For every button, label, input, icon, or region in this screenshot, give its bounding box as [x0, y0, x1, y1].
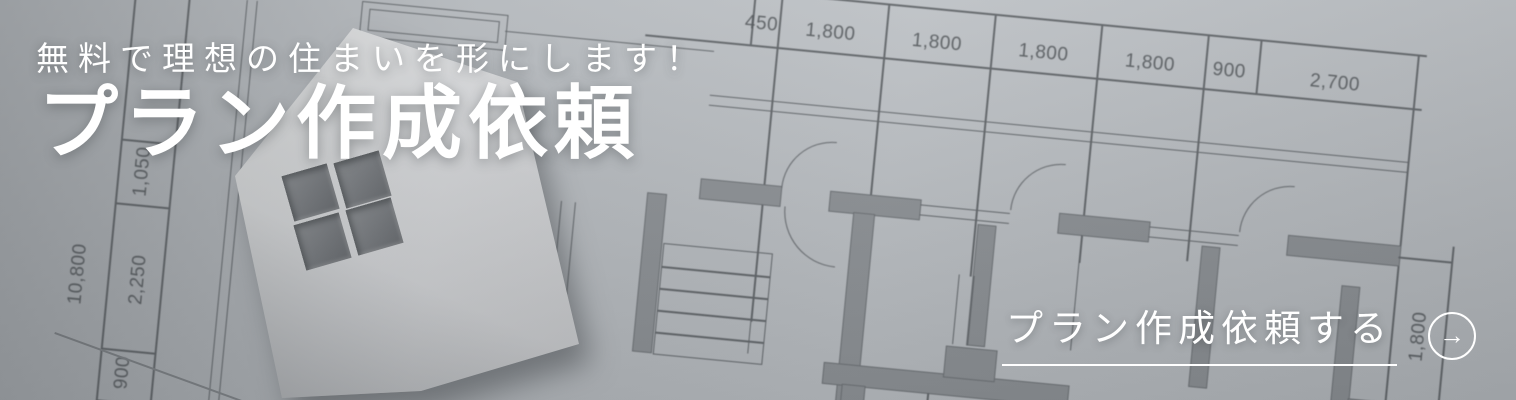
cta-label[interactable]: プラン作成依頼する — [1002, 298, 1397, 366]
right-arrow-icon: → — [1439, 322, 1465, 348]
door-arc — [781, 137, 837, 193]
door-arc — [1010, 159, 1066, 215]
stairs — [653, 243, 773, 365]
door-arc — [779, 206, 840, 267]
plan-request-cta-link[interactable]: プラン作成依頼する → — [1002, 298, 1492, 366]
door-arc — [1239, 181, 1295, 237]
dim-label-1800-d: 1,800 — [1124, 50, 1176, 77]
hero-subtitle: 無料で理想の住まいを形にします！ — [36, 32, 708, 80]
dim-label-2700: 2,700 — [1309, 70, 1361, 97]
hero-title: プラン作成依頼 — [38, 80, 640, 168]
hero-banner: 450 1,800 1,800 1,800 1,800 900 2,700 1,… — [0, 0, 1516, 400]
dim-label-450: 450 — [744, 12, 779, 37]
dim-label-900: 900 — [1212, 59, 1247, 84]
dim-label-1800-a: 1,800 — [804, 20, 856, 47]
dim-label-1800-c: 1,800 — [1017, 40, 1069, 67]
dim-label-1800-b: 1,800 — [911, 30, 963, 57]
arrow-circle-icon[interactable]: → — [1428, 312, 1476, 360]
dim-label-10800: 10,800 — [64, 243, 92, 306]
dim-label-2250: 2,250 — [125, 254, 152, 306]
